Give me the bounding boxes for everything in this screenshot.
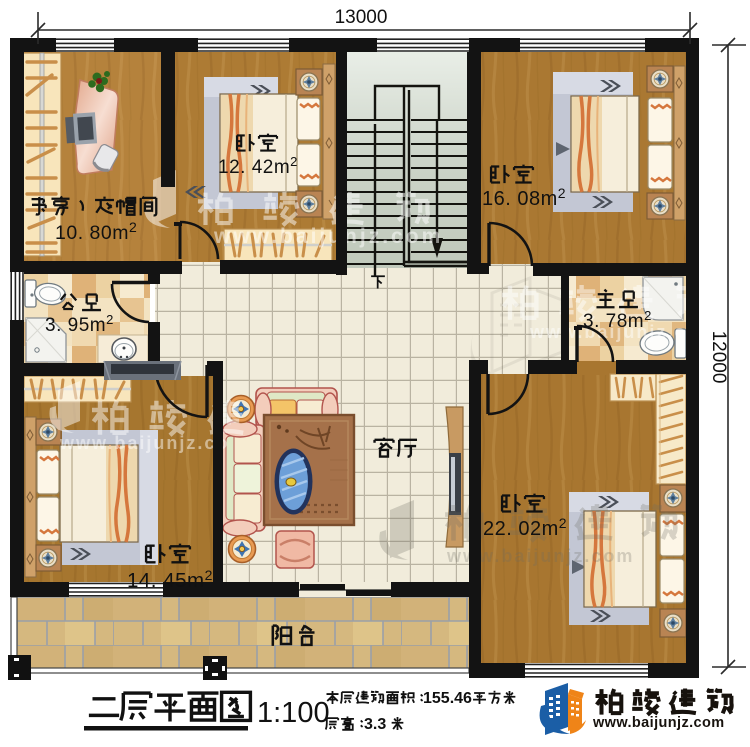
svg-text:12000: 12000 (708, 331, 729, 384)
svg-text:12. 42m2: 12. 42m2 (218, 154, 298, 178)
svg-text:14. 45m2: 14. 45m2 (127, 567, 213, 592)
svg-text:3.3: 3.3 (364, 716, 386, 733)
svg-text:22. 02m2: 22. 02m2 (483, 515, 567, 540)
svg-text:16. 08m2: 16. 08m2 (482, 185, 566, 210)
svg-text:www.baijunjz.com: www.baijunjz.com (213, 225, 443, 248)
svg-text:10. 80m2: 10. 80m2 (55, 219, 137, 244)
svg-text:www.baijunjz.co: www.baijunjz.co (59, 433, 229, 453)
svg-text:3. 78m2: 3. 78m2 (583, 308, 652, 332)
svg-text:3. 95m2: 3. 95m2 (45, 312, 114, 336)
svg-text:www.baijunjz.com: www.baijunjz.com (592, 715, 725, 731)
svg-text:1:100: 1:100 (257, 697, 330, 729)
svg-text:155.46: 155.46 (423, 690, 472, 707)
svg-text:13000: 13000 (335, 7, 388, 28)
